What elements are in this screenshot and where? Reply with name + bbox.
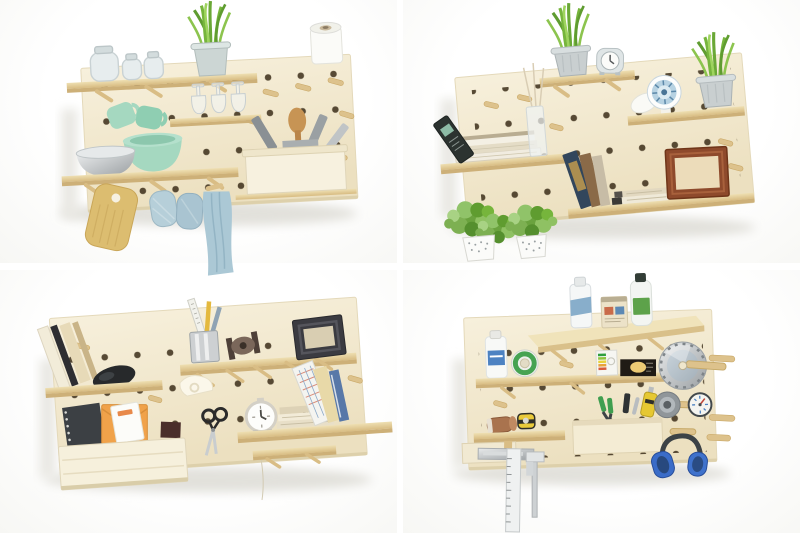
paper-towel-roll bbox=[310, 22, 343, 65]
panel-kitchen-pegboard bbox=[0, 0, 397, 263]
green-tape-roll bbox=[511, 349, 539, 377]
solvent-bottle bbox=[630, 273, 653, 326]
wine-glasses bbox=[191, 82, 246, 114]
cleaner-bottle bbox=[485, 330, 507, 378]
black-picture-frame bbox=[292, 315, 346, 360]
round-gauge bbox=[688, 393, 712, 417]
potted-grass-plant bbox=[546, 1, 594, 77]
paint-can bbox=[601, 296, 628, 328]
saw-blade bbox=[658, 340, 727, 390]
panel-home-office-pegboard bbox=[0, 270, 397, 533]
panel-workshop-pegboard bbox=[403, 270, 800, 533]
pegboard-photo-collage bbox=[0, 0, 800, 533]
hanging-towel bbox=[202, 182, 236, 275]
alarm-clock bbox=[596, 48, 623, 75]
carpenter-square bbox=[477, 440, 534, 532]
panel-living-room-pegboard bbox=[403, 0, 800, 263]
glass-jars bbox=[90, 43, 164, 81]
tape-measure bbox=[518, 413, 535, 428]
wood-picture-frame bbox=[665, 147, 729, 200]
white-notepad bbox=[110, 402, 144, 444]
spray-can bbox=[569, 277, 592, 328]
